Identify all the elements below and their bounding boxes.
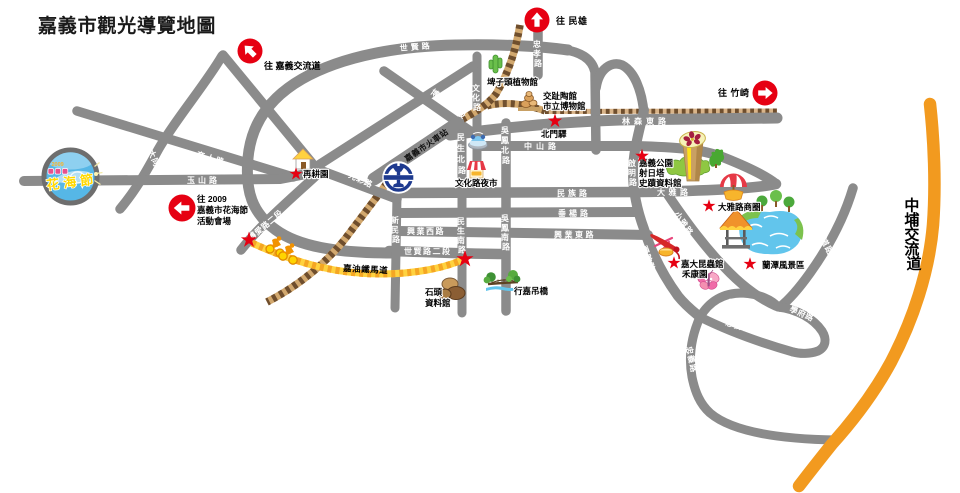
svg-text:往 2009: 往 2009	[197, 194, 227, 204]
svg-text:林森東路: 林森東路	[622, 116, 670, 126]
svg-text:興業西路: 興業西路	[407, 226, 445, 236]
svg-text:忠 孝 路: 忠 孝 路	[532, 39, 543, 68]
svg-text:文化路夜市: 文化路夜市	[455, 178, 498, 188]
svg-text:嘉大昆蟲館: 嘉大昆蟲館	[680, 259, 724, 269]
svg-text:市立博物館: 市立博物館	[543, 101, 586, 111]
svg-text:興業東路: 興業東路	[554, 230, 596, 240]
svg-text:世賢路二段: 世賢路二段	[404, 246, 452, 256]
svg-text:民族路: 民族路	[557, 188, 590, 198]
svg-text:大雅路商圈: 大雅路商圈	[718, 202, 761, 212]
svg-text:資料館: 資料館	[424, 298, 451, 308]
svg-text:往 竹崎: 往 竹崎	[718, 87, 750, 98]
svg-text:嘉義市觀光導覽地圖: 嘉義市觀光導覽地圖	[37, 14, 216, 37]
svg-text:石頭: 石頭	[424, 287, 443, 297]
svg-text:再耕園: 再耕園	[303, 169, 329, 179]
svg-text:嘉義市花海節: 嘉義市花海節	[196, 205, 249, 215]
svg-text:射日塔: 射日塔	[638, 168, 665, 178]
svg-text:禾康園: 禾康園	[682, 269, 708, 279]
svg-text:啟 明 路: 啟 明 路	[628, 158, 638, 187]
svg-text:吳 鳳 北 路: 吳 鳳 北 路	[500, 126, 511, 165]
svg-text:民 生 南 路: 民 生 南 路	[457, 217, 467, 255]
svg-text:大雅路: 大雅路	[657, 187, 692, 197]
svg-text:新 民 路: 新 民 路	[391, 215, 401, 244]
svg-text:埤子頭植物館: 埤子頭植物館	[487, 77, 539, 87]
svg-text:垂楊路: 垂楊路	[558, 208, 591, 218]
svg-text:史蹟資料館: 史蹟資料館	[639, 178, 682, 188]
svg-text:吳 鳳 南 路: 吳 鳳 南 路	[500, 214, 511, 252]
svg-text:中 埔 交 流 道: 中 埔 交 流 道	[904, 196, 923, 272]
svg-text:2009: 2009	[52, 162, 64, 168]
svg-text:蘭潭風景區: 蘭潭風景區	[762, 260, 805, 270]
svg-text:行嘉吊橋: 行嘉吊橋	[513, 286, 549, 296]
svg-text:活動會場: 活動會場	[197, 216, 232, 226]
svg-text:往 民雄: 往 民雄	[556, 15, 588, 26]
svg-text:中山路: 中山路	[524, 141, 560, 151]
svg-text:玉山路: 玉山路	[187, 175, 220, 185]
svg-text:北門驛: 北門驛	[541, 129, 567, 139]
svg-text:往 嘉義交流道: 往 嘉義交流道	[264, 60, 321, 71]
svg-text:文 化 路: 文 化 路	[472, 83, 482, 112]
svg-text:交趾陶館: 交趾陶館	[543, 91, 578, 101]
